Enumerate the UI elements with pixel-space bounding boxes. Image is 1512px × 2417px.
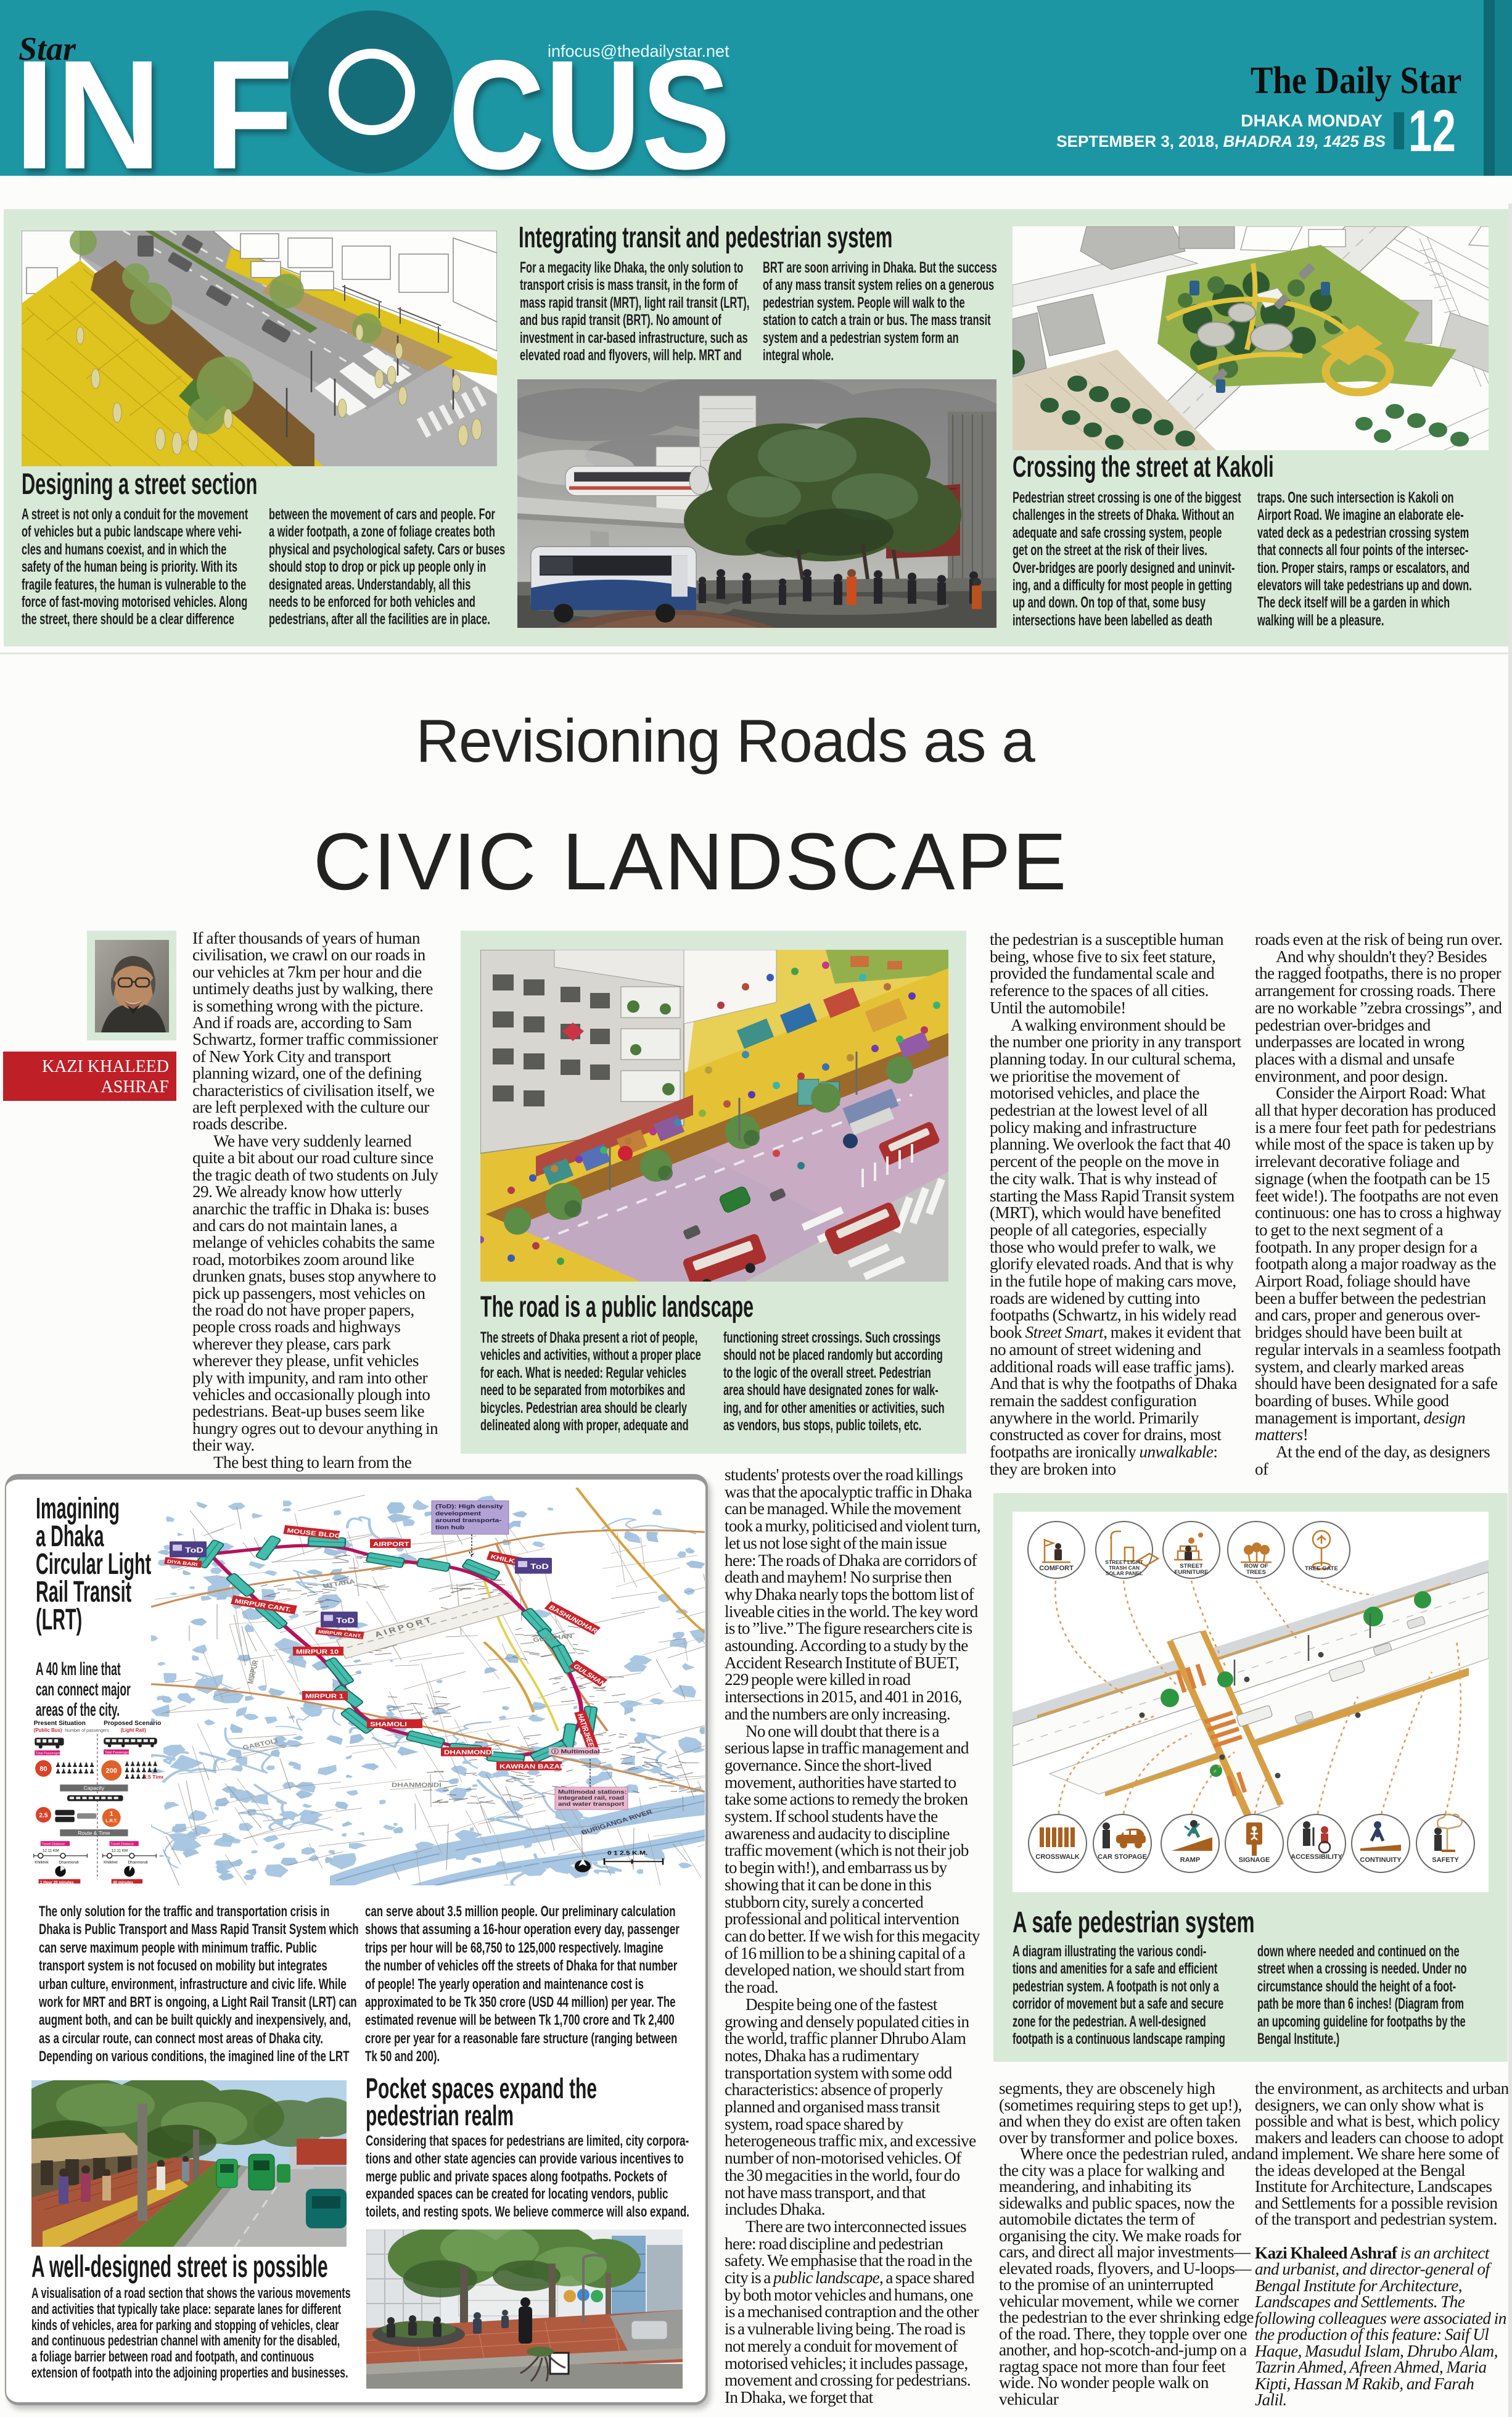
svg-text:(Light Rail): (Light Rail) xyxy=(121,1727,146,1733)
svg-text:40 minutes: 40 minutes xyxy=(113,1880,133,1884)
svg-text:Dhanmondi: Dhanmondi xyxy=(128,1861,148,1865)
svg-text:ToD: ToD xyxy=(185,1546,203,1555)
svg-text:Capacity: Capacity xyxy=(84,1785,105,1791)
svg-text:Dhanmondi: Dhanmondi xyxy=(59,1861,79,1865)
svg-text:♟♟♟♟♟♟♟: ♟♟♟♟♟♟♟ xyxy=(55,1768,94,1775)
svg-text:SAFETY: SAFETY xyxy=(1432,1856,1459,1864)
svg-text:MIRPUR: MIRPUR xyxy=(247,1660,260,1685)
svg-text:GULSHAN: GULSHAN xyxy=(572,1663,607,1687)
svg-text:2.5: 2.5 xyxy=(39,1812,48,1819)
svg-text:Proposed Scenario: Proposed Scenario xyxy=(104,1720,161,1727)
svg-text:CROSSWALK: CROSSWALK xyxy=(1035,1853,1080,1861)
svg-text:Route & Time: Route & Time xyxy=(78,1830,110,1836)
svg-text:SOLAR PANEL: SOLAR PANEL xyxy=(1106,1570,1143,1576)
svg-text:MIRPUR 10: MIRPUR 10 xyxy=(296,1649,339,1655)
svg-text:ToD: ToD xyxy=(336,1616,355,1625)
svg-text:12.11 KM: 12.11 KM xyxy=(43,1849,59,1853)
svg-text:TREE GATE: TREE GATE xyxy=(1305,1565,1338,1572)
svg-text:development: development xyxy=(435,1510,481,1517)
svg-text:Khilkhet: Khilkhet xyxy=(104,1861,118,1865)
svg-text:Multimodal stations:: Multimodal stations: xyxy=(558,1789,627,1795)
svg-text:1 Hour 20 minutes: 1 Hour 20 minutes xyxy=(40,1880,74,1884)
svg-text:Number of passengers: Number of passengers xyxy=(65,1728,109,1733)
svg-text:12.11 KM: 12.11 KM xyxy=(112,1849,128,1853)
svg-text:2.5 Times: 2.5 Times xyxy=(144,1774,163,1780)
svg-text:200: 200 xyxy=(106,1768,117,1775)
svg-text:♟♟♟♟♟♟: ♟♟♟♟♟♟ xyxy=(124,1768,158,1774)
svg-text:SHAMOLI: SHAMOLI xyxy=(370,1721,407,1727)
svg-text:ⓘ Multimodal: ⓘ Multimodal xyxy=(551,1748,600,1755)
svg-text:Travel Distance: Travel Distance xyxy=(41,1843,65,1847)
svg-text:BASHUNDHARA: BASHUNDHARA xyxy=(547,1604,604,1637)
svg-text:♟♟♟♟♟♟: ♟♟♟♟♟♟ xyxy=(124,1761,158,1768)
svg-text:FURNITURE: FURNITURE xyxy=(1175,1569,1209,1576)
svg-text:Total Passengers: Total Passengers xyxy=(36,1752,62,1755)
svg-text:L.R.T.: L.R.T. xyxy=(105,1818,117,1823)
svg-text:Present Situation: Present Situation xyxy=(34,1720,86,1727)
svg-text:(ToD): High density: (ToD): High density xyxy=(435,1504,503,1510)
svg-text:DHANMONDI: DHANMONDI xyxy=(392,1782,442,1789)
svg-text:AIRPORT: AIRPORT xyxy=(373,1541,409,1547)
svg-text:ToD: ToD xyxy=(530,1563,549,1571)
svg-text:Total Passengers: Total Passengers xyxy=(105,1751,131,1755)
svg-text:GABTOLI: GABTOLI xyxy=(242,1738,279,1751)
svg-text:TREES: TREES xyxy=(1246,1569,1266,1576)
svg-text:ACCESSIBILITY: ACCESSIBILITY xyxy=(1291,1853,1342,1861)
svg-text:RAMP: RAMP xyxy=(1180,1856,1200,1864)
svg-text:80: 80 xyxy=(39,1765,47,1773)
svg-text:DHANMONDI: DHANMONDI xyxy=(444,1750,494,1756)
svg-text:Khilkhet: Khilkhet xyxy=(35,1861,49,1865)
svg-text:COMFORT: COMFORT xyxy=(1039,1565,1074,1572)
svg-text:tion hub: tion hub xyxy=(435,1525,465,1531)
svg-text:around transporta-: around transporta- xyxy=(435,1517,502,1523)
svg-text:and water transport: and water transport xyxy=(558,1801,625,1807)
svg-text:CONTINUITY: CONTINUITY xyxy=(1360,1856,1402,1864)
svg-text:(Public Bus): (Public Bus) xyxy=(34,1727,62,1733)
svg-text:MIRPUR 1: MIRPUR 1 xyxy=(305,1694,344,1700)
svg-text:♟♟♟♟♟♟♟: ♟♟♟♟♟♟♟ xyxy=(55,1762,94,1769)
svg-text:CAR STOPAGE: CAR STOPAGE xyxy=(1098,1853,1147,1861)
svg-text:Travel Distance: Travel Distance xyxy=(110,1843,134,1847)
svg-text:integrated rail, road: integrated rail, road xyxy=(558,1795,624,1801)
svg-text:1: 1 xyxy=(110,1811,113,1818)
svg-text:SIGNAGE: SIGNAGE xyxy=(1239,1856,1270,1864)
svg-text:KAWRAN BAZAR: KAWRAN BAZAR xyxy=(499,1764,566,1770)
svg-text:0 1 2.5 K.M.: 0 1 2.5 K.M. xyxy=(607,1850,647,1856)
